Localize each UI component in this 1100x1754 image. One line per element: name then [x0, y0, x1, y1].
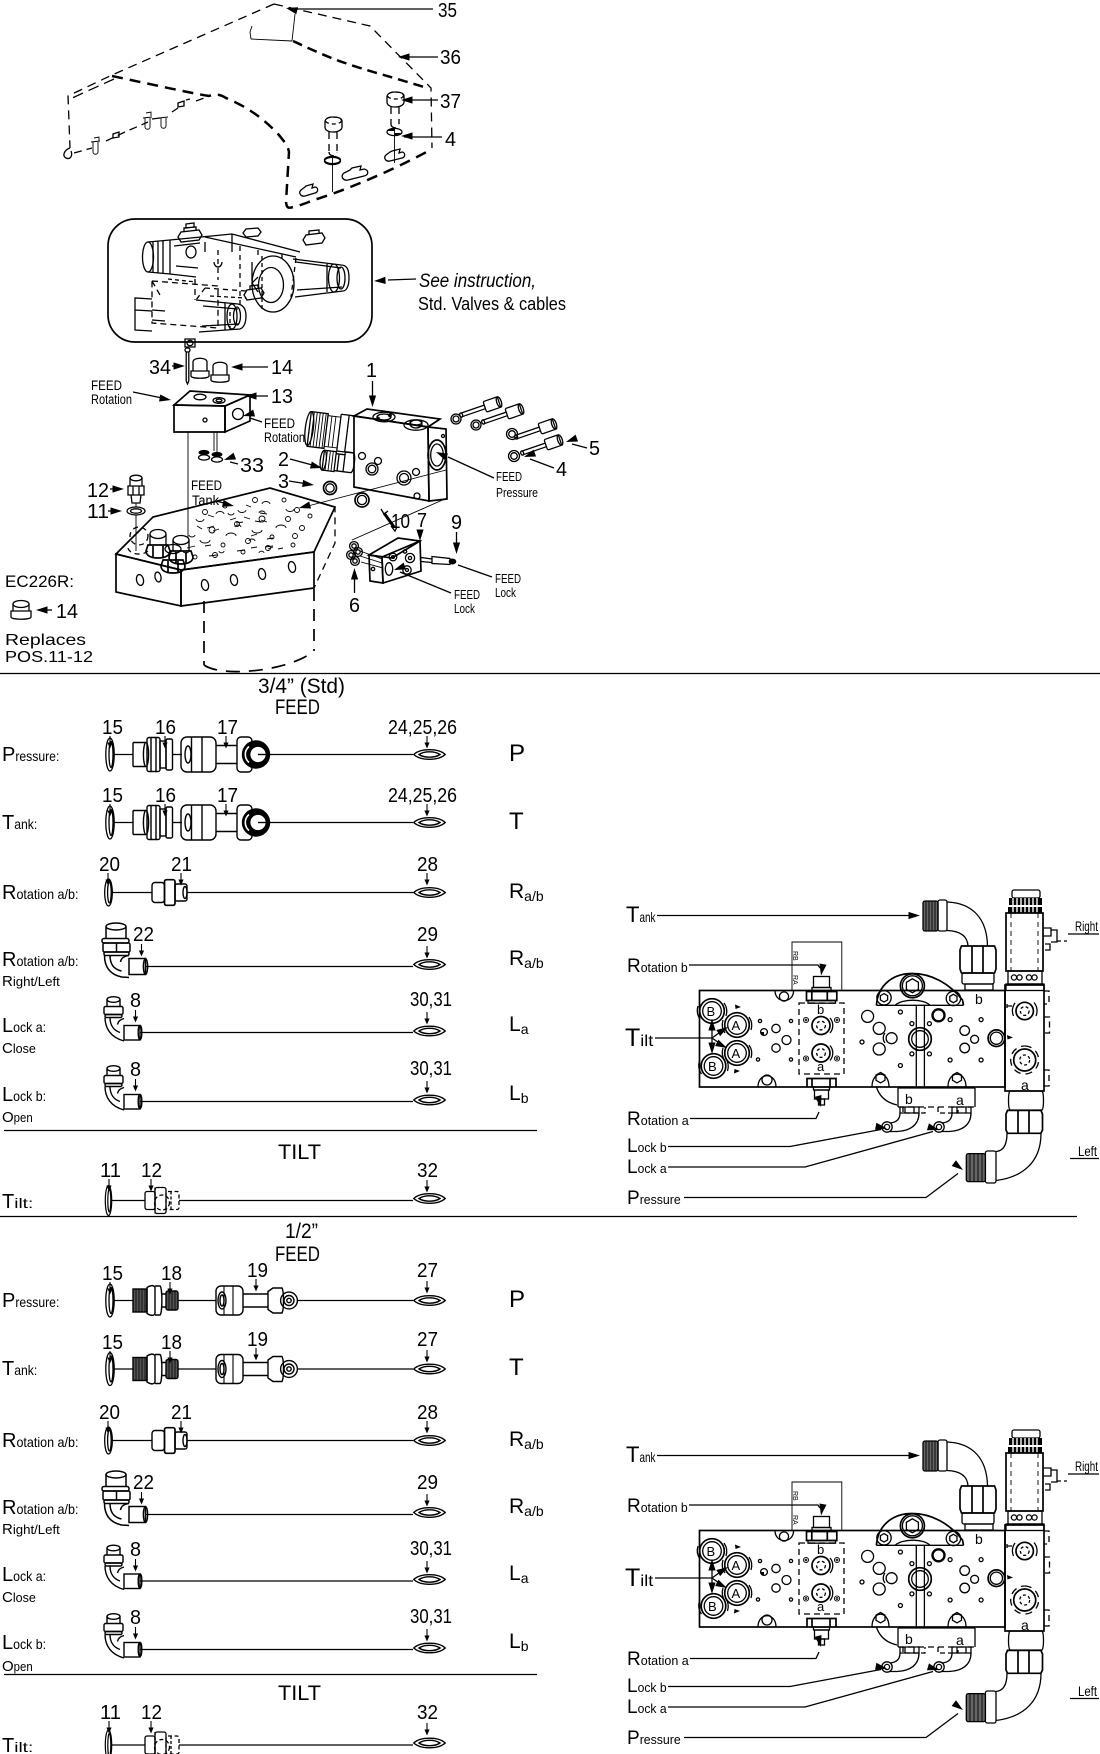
svg-text:18: 18 — [161, 1263, 182, 1285]
svg-text:28: 28 — [417, 854, 438, 876]
svg-text:9: 9 — [451, 512, 462, 534]
svg-text:17: 17 — [217, 717, 238, 739]
svg-text:Rotation a: Rotation a — [627, 1109, 689, 1130]
svg-text:FEED: FEED — [191, 478, 222, 493]
svg-text:20: 20 — [99, 854, 120, 876]
svg-text:Left: Left — [1078, 1144, 1097, 1159]
svg-text:Right: Right — [1075, 919, 1098, 934]
svg-text:Lock a:: Lock a: — [2, 1015, 46, 1037]
svg-text:13: 13 — [271, 386, 293, 408]
svg-text:30,31: 30,31 — [410, 1058, 452, 1080]
svg-text:Rotation a/b:: Rotation a/b: — [2, 1497, 78, 1519]
svg-text:TILT: TILT — [278, 1141, 321, 1164]
svg-text:8: 8 — [130, 1059, 141, 1081]
svg-text:22: 22 — [133, 924, 154, 946]
svg-text:Close: Close — [2, 1589, 36, 1606]
svg-text:POS.11-12: POS.11-12 — [5, 649, 93, 666]
svg-text:Pressure:: Pressure: — [2, 744, 59, 766]
svg-text:Lock a: Lock a — [627, 1157, 667, 1178]
svg-text:T: T — [509, 808, 524, 835]
svg-text:Rotation: Rotation — [91, 392, 132, 407]
svg-text:RA: RA — [791, 975, 798, 985]
svg-text:22: 22 — [133, 1472, 154, 1494]
svg-text:Pressure: Pressure — [496, 486, 538, 500]
svg-text:Tank:: Tank: — [2, 812, 37, 834]
svg-text:Right/Left: Right/Left — [2, 973, 60, 990]
svg-text:1: 1 — [366, 360, 377, 382]
svg-text:See instruction,: See instruction, — [419, 271, 536, 292]
svg-text:11: 11 — [100, 1702, 121, 1724]
svg-text:TILT: TILT — [278, 1682, 321, 1705]
svg-text:12: 12 — [87, 480, 109, 502]
svg-text:Rotation a/b:: Rotation a/b: — [2, 882, 78, 904]
svg-text:15: 15 — [102, 785, 123, 807]
svg-text:20: 20 — [99, 1402, 120, 1424]
svg-text:14: 14 — [271, 357, 293, 379]
svg-text:Lock: Lock — [454, 602, 476, 616]
svg-text:P: P — [509, 740, 525, 767]
svg-text:12: 12 — [141, 1702, 162, 1724]
svg-text:Open: Open — [2, 1109, 33, 1126]
svg-text:Tank:: Tank: — [2, 1358, 37, 1380]
svg-text:7: 7 — [417, 510, 427, 532]
svg-text:Open: Open — [2, 1658, 33, 1675]
svg-text:Lock a:: Lock a: — [2, 1564, 46, 1586]
svg-text:14: 14 — [56, 601, 78, 623]
svg-text:Rotation b: Rotation b — [627, 956, 688, 977]
svg-text:24,25,26: 24,25,26 — [388, 717, 457, 739]
svg-text:b: b — [817, 1002, 824, 1017]
svg-text:T: T — [509, 1354, 524, 1381]
svg-text:32: 32 — [417, 1160, 438, 1182]
svg-text:30,31: 30,31 — [410, 1606, 452, 1628]
svg-text:Right/Left: Right/Left — [2, 1521, 60, 1538]
svg-text:27: 27 — [417, 1260, 438, 1282]
svg-text:Lock b:: Lock b: — [2, 1084, 46, 1106]
svg-text:Lock b:: Lock b: — [2, 1632, 46, 1654]
svg-text:Tilt:: Tilt: — [2, 1191, 33, 1213]
svg-text:b: b — [905, 1091, 913, 1107]
svg-text:15: 15 — [102, 1263, 123, 1285]
svg-text:5: 5 — [589, 438, 600, 460]
svg-text:P: P — [509, 1286, 525, 1313]
svg-text:28: 28 — [417, 1402, 438, 1424]
svg-text:19: 19 — [247, 1329, 268, 1351]
svg-text:Std. Valves & cables: Std. Valves & cables — [418, 293, 566, 314]
svg-text:37: 37 — [440, 91, 461, 113]
svg-text:36: 36 — [440, 47, 461, 69]
svg-text:27: 27 — [417, 1329, 438, 1351]
svg-text:24,25,26: 24,25,26 — [388, 785, 457, 807]
svg-text:2: 2 — [278, 449, 289, 471]
svg-text:4: 4 — [556, 459, 567, 481]
svg-text:32: 32 — [417, 1702, 438, 1724]
svg-text:B: B — [708, 1059, 717, 1074]
svg-text:FEED: FEED — [91, 378, 122, 393]
svg-text:8: 8 — [130, 990, 141, 1012]
svg-text:A: A — [732, 1018, 741, 1033]
svg-text:FEED: FEED — [275, 1243, 320, 1266]
svg-text:RB: RB — [791, 951, 798, 961]
svg-text:35: 35 — [438, 0, 457, 22]
svg-text:8: 8 — [130, 1539, 141, 1561]
svg-text:15: 15 — [102, 1332, 123, 1354]
svg-text:11: 11 — [100, 1160, 121, 1182]
svg-text:3/4” (Std): 3/4” (Std) — [258, 675, 345, 698]
svg-text:FEED: FEED — [454, 588, 480, 602]
svg-text:a: a — [817, 1059, 825, 1074]
svg-text:34: 34 — [149, 357, 171, 379]
svg-text:Rotation a/b:: Rotation a/b: — [2, 949, 78, 971]
svg-text:A: A — [732, 1046, 741, 1061]
svg-text:21: 21 — [171, 1402, 192, 1424]
svg-text:30,31: 30,31 — [410, 1538, 452, 1560]
svg-text:FEED: FEED — [496, 470, 522, 484]
svg-text:30,31: 30,31 — [410, 989, 452, 1011]
svg-text:Close: Close — [2, 1040, 36, 1057]
svg-text:18: 18 — [161, 1332, 182, 1354]
svg-text:16: 16 — [155, 785, 176, 807]
svg-text:6: 6 — [349, 595, 360, 617]
svg-text:Rotation a/b:: Rotation a/b: — [2, 1430, 78, 1452]
svg-text:4: 4 — [445, 129, 456, 151]
svg-text:Rotation: Rotation — [264, 430, 305, 445]
svg-text:1/2”: 1/2” — [285, 1220, 318, 1243]
svg-text:11: 11 — [87, 501, 109, 523]
svg-text:a: a — [956, 1092, 964, 1108]
svg-text:17: 17 — [217, 785, 238, 807]
svg-text:FEED: FEED — [264, 416, 295, 431]
svg-text:Lock: Lock — [495, 586, 517, 600]
svg-text:Pressure:: Pressure: — [2, 1290, 59, 1312]
svg-text:Pressure: Pressure — [627, 1188, 681, 1209]
svg-text:Replaces: Replaces — [5, 632, 86, 649]
svg-text:33: 33 — [240, 455, 264, 477]
svg-text:16: 16 — [155, 717, 176, 739]
svg-text:19: 19 — [247, 1260, 268, 1282]
svg-text:29: 29 — [417, 1472, 438, 1494]
svg-text:FEED: FEED — [495, 572, 521, 586]
svg-text:FEED: FEED — [275, 696, 320, 719]
svg-text:Lock b: Lock b — [627, 1136, 667, 1157]
svg-text:EC226R:: EC226R: — [5, 572, 74, 591]
svg-text:15: 15 — [102, 717, 123, 739]
svg-text:b: b — [975, 991, 983, 1007]
svg-text:8: 8 — [130, 1607, 141, 1629]
svg-text:12: 12 — [141, 1160, 162, 1182]
svg-text:3: 3 — [278, 471, 289, 493]
svg-text:21: 21 — [171, 854, 192, 876]
svg-text:B: B — [707, 1004, 716, 1019]
svg-text:29: 29 — [417, 924, 438, 946]
